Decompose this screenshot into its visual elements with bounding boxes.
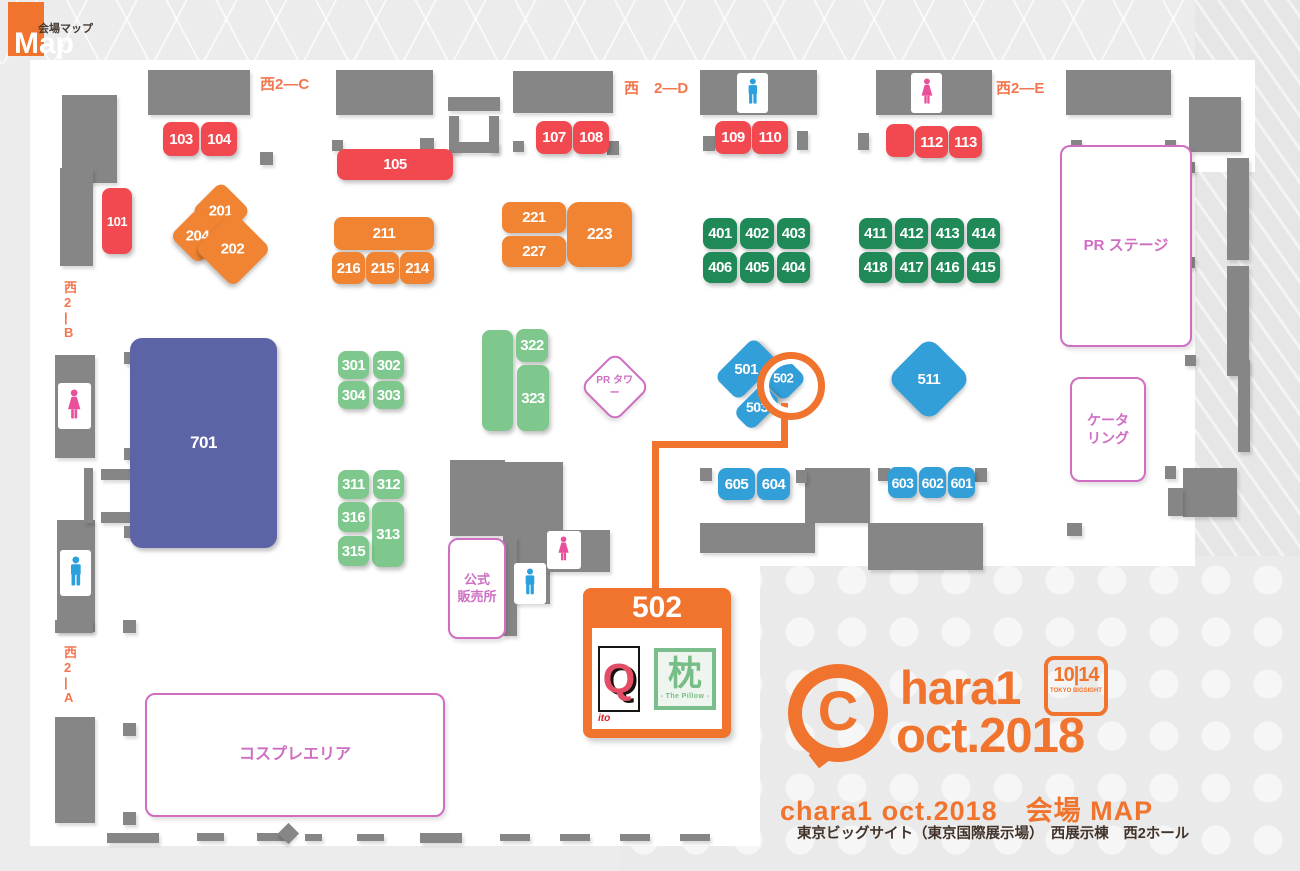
booth: 601	[948, 467, 975, 498]
booth: 110	[752, 121, 788, 154]
hall-gate-label: 西2—E	[996, 80, 1044, 97]
booth: 602	[919, 467, 946, 498]
q-logo-letter: Q	[603, 658, 636, 700]
booth-number: 402	[745, 225, 769, 242]
booth-number: 216	[337, 260, 361, 277]
booth-number: 511	[918, 370, 941, 387]
hall-gate-label-text: 西 2 | A	[64, 645, 77, 705]
booth-number: 107	[542, 129, 566, 146]
booth: 211	[334, 217, 434, 250]
booth: 112	[915, 126, 948, 158]
booth: 227	[502, 236, 566, 267]
q-logo-sub: ito	[598, 713, 610, 724]
booth: 107	[536, 121, 572, 154]
booth-number: 601	[951, 475, 973, 491]
booth: 316	[338, 502, 369, 532]
booth: 322	[516, 329, 548, 362]
hall-gate-label-text: 西2—C	[260, 76, 309, 93]
booth: 603	[888, 467, 917, 498]
booth-number: 418	[864, 259, 888, 276]
booth-number: 316	[342, 509, 366, 526]
venue-map-page: { "maplogo": { "jp": "会場マップ", "en": "Map…	[0, 0, 1300, 871]
booth-number: 227	[522, 243, 546, 260]
booth-number: 414	[972, 225, 996, 242]
booth-number: 302	[377, 357, 401, 374]
booth-number: 416	[936, 259, 960, 276]
booth	[886, 124, 914, 157]
booth: 417	[895, 252, 928, 283]
booth-number: 108	[579, 129, 603, 146]
booth-number: 405	[745, 259, 769, 276]
booth: 418	[859, 252, 892, 283]
highlight-circle-502	[757, 352, 825, 420]
booth-number: 411	[864, 225, 887, 242]
booth: 221	[502, 202, 566, 233]
booth: 402	[740, 218, 774, 249]
booth-number: 202	[221, 241, 245, 258]
booth-number: 605	[725, 476, 749, 493]
booth: 101	[102, 188, 132, 254]
venue-address: 東京ビッグサイト（東京国際展示場） 西展示棟 西2ホール	[797, 822, 1189, 843]
booth-number: 604	[762, 476, 786, 493]
pillow-kanji: 枕	[668, 657, 702, 691]
booth-number: 303	[377, 387, 401, 404]
booth: 113	[949, 126, 982, 158]
booth: 415	[967, 252, 1000, 283]
booth-number: 404	[782, 259, 806, 276]
hall-gate-label-text: 西2—E	[996, 80, 1044, 97]
booth: 313	[372, 502, 404, 567]
hall-gate-label: 西 2—D	[624, 80, 688, 97]
booth: 109	[715, 121, 751, 154]
booth: 216	[332, 252, 365, 284]
booth: 105	[337, 149, 453, 180]
booth: 214	[400, 252, 434, 284]
booth-number: 112	[920, 134, 943, 151]
booth: 405	[740, 252, 774, 283]
booth: 301	[338, 351, 369, 379]
booth: 104	[201, 122, 237, 156]
booth: 404	[777, 252, 810, 283]
date-badge-date: 10|14	[1048, 664, 1104, 687]
booth-number: 313	[376, 526, 400, 543]
highlight-path	[652, 441, 659, 591]
booth-number: 304	[342, 387, 366, 404]
booth-number: 406	[708, 259, 732, 276]
booth-number: 301	[342, 357, 366, 374]
booth-number: 221	[522, 209, 546, 226]
booth-number: 315	[342, 543, 366, 560]
booth-number: 101	[107, 214, 127, 229]
hall-gate-label-text: 西 2 | B	[64, 280, 77, 340]
booth	[482, 330, 513, 431]
the-pillow-logo: 枕 - The Pillow -	[654, 648, 716, 710]
booth-number: 312	[377, 476, 401, 493]
booth: 323	[517, 365, 549, 431]
booth-number: 311	[342, 476, 365, 493]
chara1-oct2018: oct.2018	[896, 708, 1084, 764]
booth-502-callout: 502 Q ito 枕 - The Pillow -	[583, 588, 731, 738]
booth: 304	[338, 381, 369, 409]
chara1-logo: C hara1 oct.2018 10|14 TOKYO BIGSIGHT	[782, 656, 1152, 776]
booth: 312	[373, 470, 404, 499]
hall-gate-label: 西2—C	[260, 76, 309, 93]
booth: 223	[567, 202, 632, 267]
booth: 511	[887, 337, 972, 422]
booth: 303	[373, 381, 404, 409]
booth: 311	[338, 470, 369, 499]
date-badge-venue: TOKYO BIGSIGHT	[1048, 688, 1104, 694]
booth-number: 323	[521, 390, 545, 407]
booth-number: 401	[708, 225, 732, 242]
callout-booth-number: 502	[583, 588, 731, 628]
booth: 413	[931, 218, 964, 249]
booth: 215	[366, 252, 399, 284]
booth: 103	[163, 122, 199, 156]
booth: 108	[573, 121, 609, 154]
q-ito-logo: Q ito	[598, 646, 640, 712]
booth-number: 223	[587, 226, 612, 244]
date-badge: 10|14 TOKYO BIGSIGHT	[1044, 656, 1108, 716]
chara1-hara1: hara1	[900, 660, 1020, 715]
booth-number: 214	[405, 260, 429, 277]
booth-number: 110	[759, 129, 782, 146]
highlight-path	[652, 441, 788, 448]
hall-gate-label: 西 2 | A	[64, 645, 77, 705]
booth-number: 415	[972, 259, 996, 276]
booth-number: 412	[900, 225, 924, 242]
booth-number: 211	[373, 225, 396, 242]
booth-number: 104	[207, 131, 231, 148]
booth-number: 403	[782, 225, 806, 242]
booth: 701	[130, 338, 277, 548]
booth-number: 413	[936, 225, 960, 242]
hall-gate-label-text: 西 2—D	[624, 80, 688, 97]
chara1-c-letter: C	[818, 683, 858, 739]
venue-map: 101 103 104 105 107 108 109 110 112 113	[0, 0, 1300, 871]
booth-number: 215	[371, 260, 395, 277]
booth: 302	[373, 351, 404, 379]
booth: 411	[859, 218, 892, 249]
booth-number: 602	[922, 475, 944, 491]
booth-number: 603	[892, 475, 914, 491]
booth-number: 105	[383, 156, 407, 173]
booth-number: 103	[169, 131, 193, 148]
booth-number: 701	[190, 433, 217, 453]
booth-number: 501	[734, 361, 758, 378]
booth: 416	[931, 252, 964, 283]
booth-number: 113	[954, 134, 977, 151]
pillow-sub: - The Pillow -	[661, 693, 710, 700]
hall-gate-label: 西 2 | B	[64, 280, 77, 340]
map-logo-en: Map	[14, 27, 74, 61]
booth-number: 322	[520, 337, 544, 354]
booth: 412	[895, 218, 928, 249]
booth: 414	[967, 218, 1000, 249]
booth: 403	[777, 218, 810, 249]
booth: 406	[703, 252, 737, 283]
booth: 605	[718, 468, 755, 500]
booth-number: 417	[900, 259, 924, 276]
callout-exhibitor-logos: Q ito 枕 - The Pillow -	[592, 628, 722, 729]
booth: 401	[703, 218, 737, 249]
booth: 315	[338, 536, 369, 566]
booth-number: 109	[721, 129, 745, 146]
chara1-c-circle: C	[788, 664, 888, 762]
booth: 604	[757, 468, 790, 500]
